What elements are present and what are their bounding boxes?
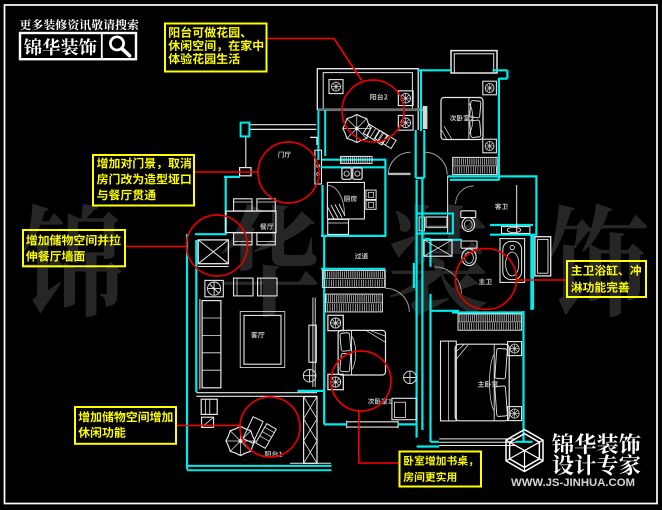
svg-text:WWW.JS-JINHUA.COM: WWW.JS-JINHUA.COM xyxy=(511,477,635,489)
